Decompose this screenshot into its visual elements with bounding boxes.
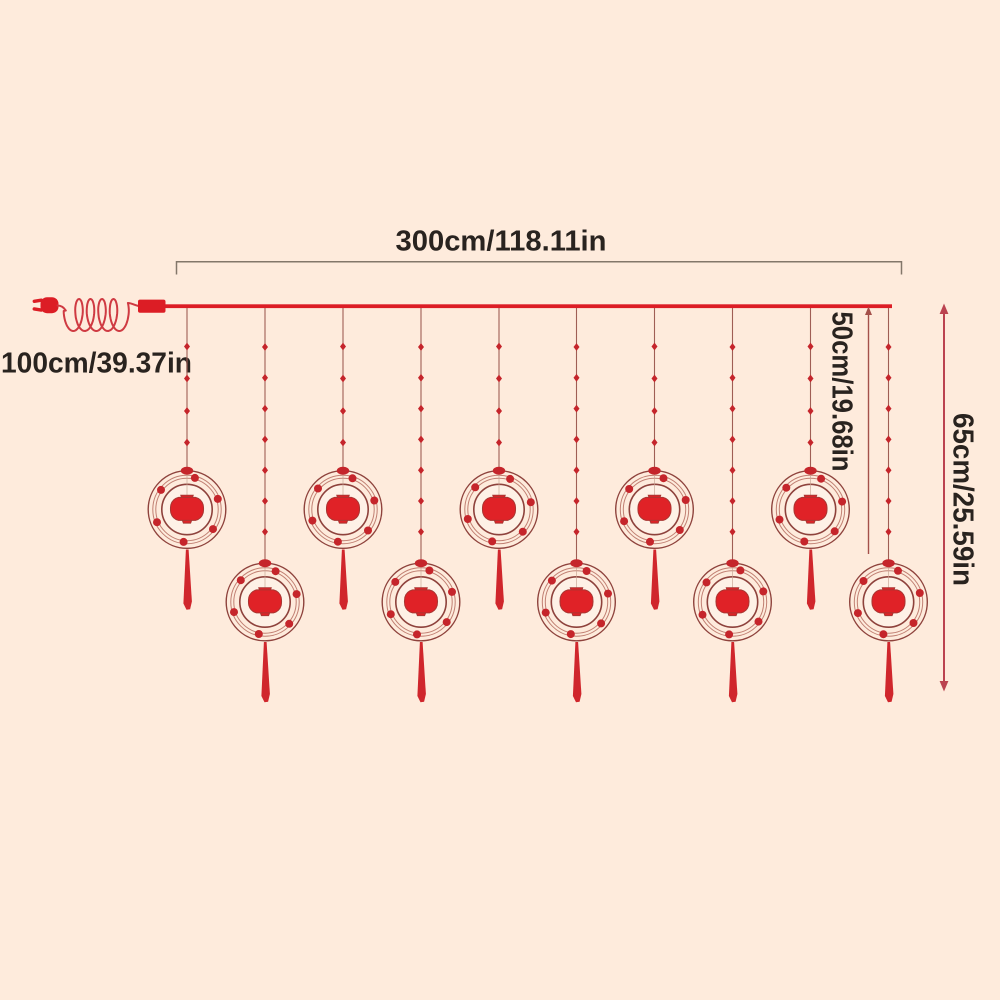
svg-text:50cm/19.68in: 50cm/19.68in — [826, 312, 858, 472]
svg-text:65cm/25.59in: 65cm/25.59in — [947, 413, 979, 586]
svg-text:300cm/118.11in: 300cm/118.11in — [396, 226, 607, 258]
svg-text:100cm/39.37in: 100cm/39.37in — [1, 347, 192, 379]
